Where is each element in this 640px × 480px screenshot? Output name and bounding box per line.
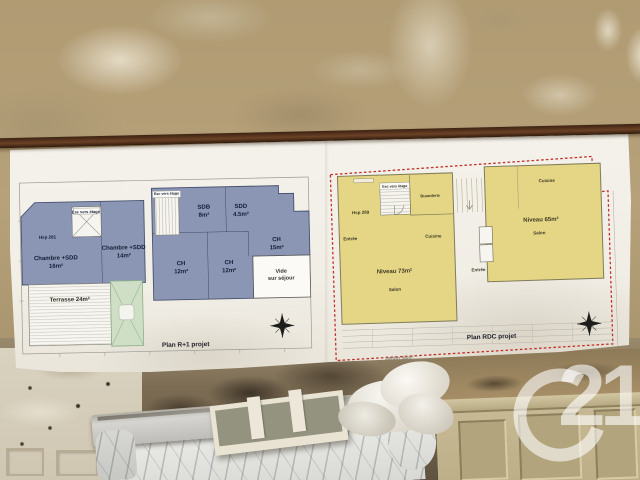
chimney — [479, 227, 493, 244]
terrace-decking — [28, 283, 111, 346]
paneling-panel — [594, 408, 639, 480]
plan-r1-title: Plan R+1 projet — [162, 341, 210, 350]
stair-label: Esc vers étage — [72, 208, 100, 214]
wall-molding-panel — [56, 450, 98, 476]
paneling-panel — [458, 419, 508, 480]
white-cloth — [338, 362, 458, 442]
chimney — [480, 245, 494, 262]
compass-rose-icon — [270, 313, 294, 337]
room-label-vide: Vide sur séjour — [268, 268, 295, 282]
mantel-corbel-left — [94, 429, 137, 480]
plan-rdc-title: Plan RDC projet — [467, 333, 517, 343]
wood-paneling — [434, 348, 640, 480]
skylight-dome — [119, 305, 134, 320]
wall-molding-panel — [6, 448, 44, 476]
room-label-entree-d: Entrée — [471, 267, 485, 273]
photo-stage: Esc vers étage Hsp 281 Chambre +SDD 16m²… — [0, 0, 640, 480]
room-label-terrasse: Terrasse 24m² — [50, 297, 90, 305]
room-label-chambre14: Chambre +SDD 14m² — [102, 245, 146, 261]
stair-label: Esc vers étage — [382, 184, 407, 189]
room-label-buanderie: Buanderie — [420, 193, 440, 199]
room-label-ch12b: CH 12m² — [222, 260, 236, 275]
boundary-line — [613, 191, 618, 346]
paneling-panel — [518, 412, 582, 480]
room-label-niveau65: Niveau 65m² — [523, 217, 559, 226]
stair-treads — [155, 197, 180, 235]
room-label-sdb: SDB 8m² — [197, 205, 210, 220]
room-label-salon-d: Salon — [533, 230, 545, 236]
compass-rose-icon — [577, 311, 602, 336]
room-label-ch15: CH 15m² — [269, 237, 283, 252]
ceiling-height-label: Hsp 281 — [39, 234, 56, 240]
floor-plan-rdc: Esc vers étage Buanderie Hsp 289 Entrée … — [327, 145, 634, 366]
window-mark — [354, 178, 374, 183]
room-label-cuisine-g: Cuisine — [425, 233, 441, 239]
floor-plan-r1: Esc vers étage Hsp 281 Chambre +SDD 16m²… — [16, 165, 316, 363]
room-label-niveau73: Niveau 73m² — [377, 268, 413, 277]
room-label-entree-g: Entrée — [343, 236, 357, 242]
room-label-ch12a: CH 12m² — [174, 261, 188, 276]
room-label-cuisine-d: Cuisine — [538, 178, 554, 184]
ceiling-height-label: Hsp 289 — [352, 210, 369, 216]
room-label-salon-g: Salon — [389, 287, 401, 293]
stair-label: Esc vers étage — [154, 191, 179, 196]
room-label-chambre16: Chambre +SDD 16m² — [34, 255, 78, 271]
room-label-sdd: SDD 4.5m² — [233, 204, 249, 219]
